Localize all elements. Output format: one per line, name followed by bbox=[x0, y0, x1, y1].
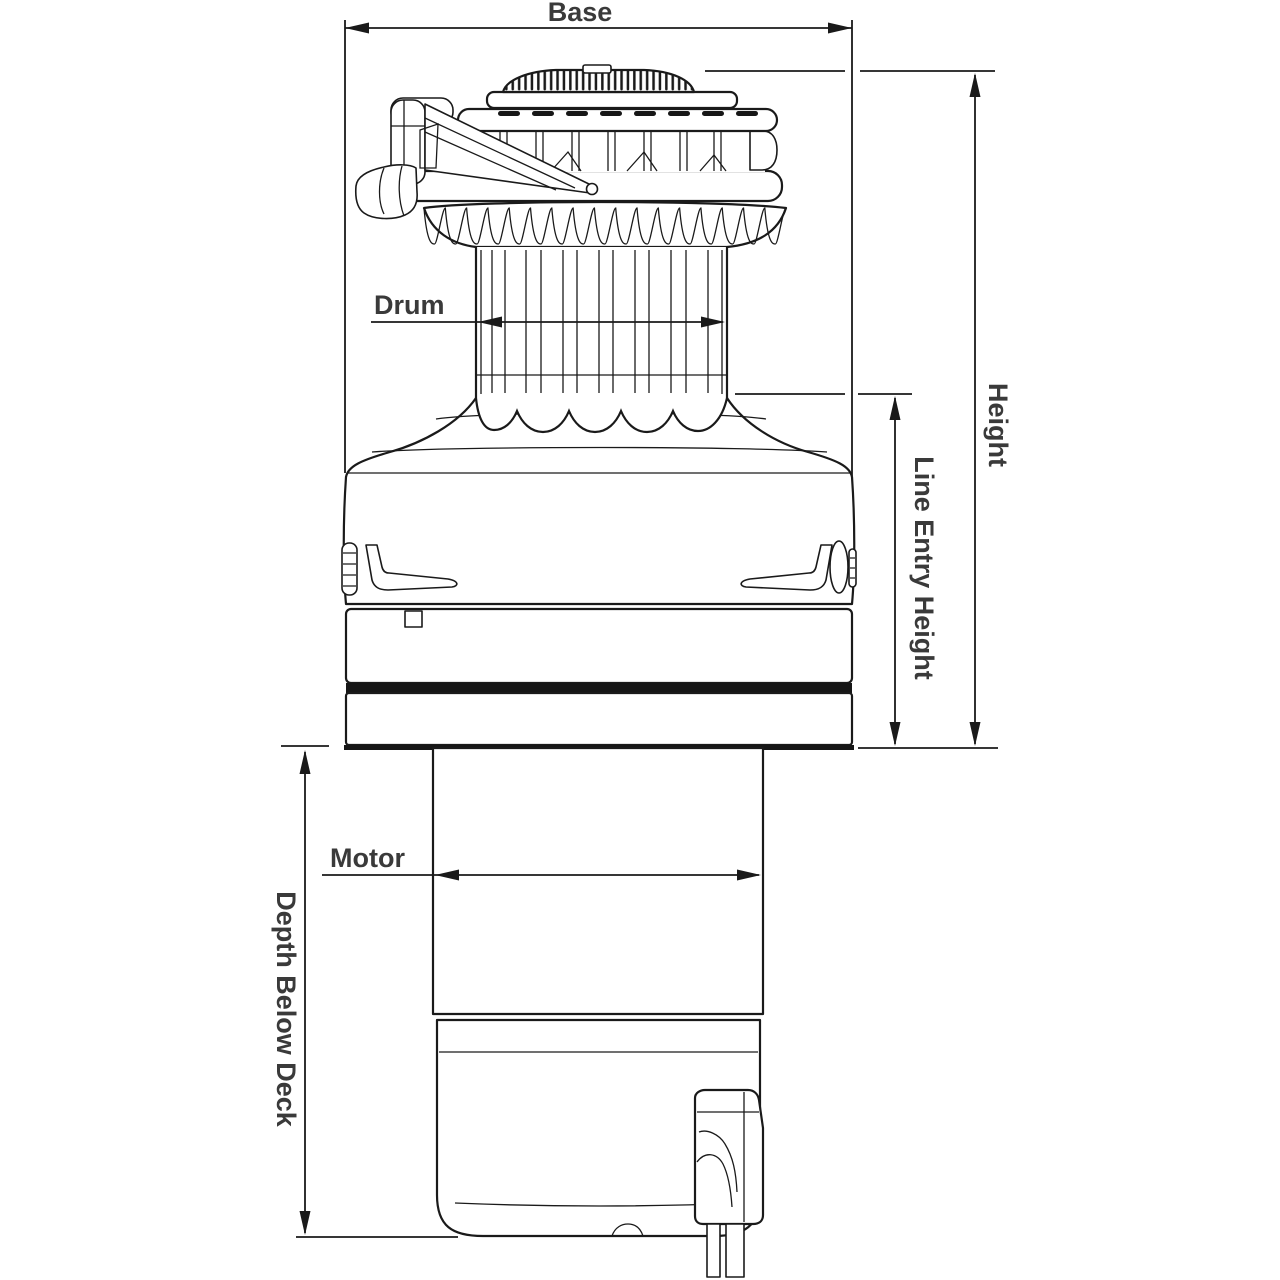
stripper-arm-knob bbox=[356, 165, 417, 219]
cable-plug bbox=[695, 1090, 763, 1224]
dim-drum-label: Drum bbox=[374, 290, 445, 320]
feeder-ring bbox=[458, 109, 777, 131]
dim-line-entry-height-label: Line Entry Height bbox=[909, 456, 939, 680]
dim-motor-label: Motor bbox=[330, 843, 405, 873]
ribbed-crown-cap bbox=[503, 65, 694, 92]
base-gasket-band bbox=[346, 683, 852, 693]
cap-center-socket bbox=[583, 65, 611, 73]
power-wires bbox=[707, 1224, 744, 1277]
winch-illustration bbox=[342, 65, 856, 1277]
base-ring-upper bbox=[346, 609, 852, 683]
ring-notch bbox=[405, 611, 422, 627]
drum bbox=[476, 247, 727, 432]
winch-dimension-diagram: Base Height Line Entry Height Drum bbox=[0, 0, 1280, 1280]
dimension-drawing: Base Height Line Entry Height Drum bbox=[0, 0, 1280, 1280]
base-ring-lower bbox=[346, 693, 852, 745]
dim-base-label: Base bbox=[548, 0, 613, 27]
cap-plate bbox=[487, 92, 737, 108]
drum-lower-crown bbox=[424, 202, 786, 247]
motor-housing bbox=[433, 748, 763, 1014]
dim-depth-below-deck: Depth Below Deck bbox=[271, 746, 458, 1237]
dim-depth-below-deck-label: Depth Below Deck bbox=[271, 891, 301, 1128]
dim-height-label: Height bbox=[983, 383, 1013, 467]
